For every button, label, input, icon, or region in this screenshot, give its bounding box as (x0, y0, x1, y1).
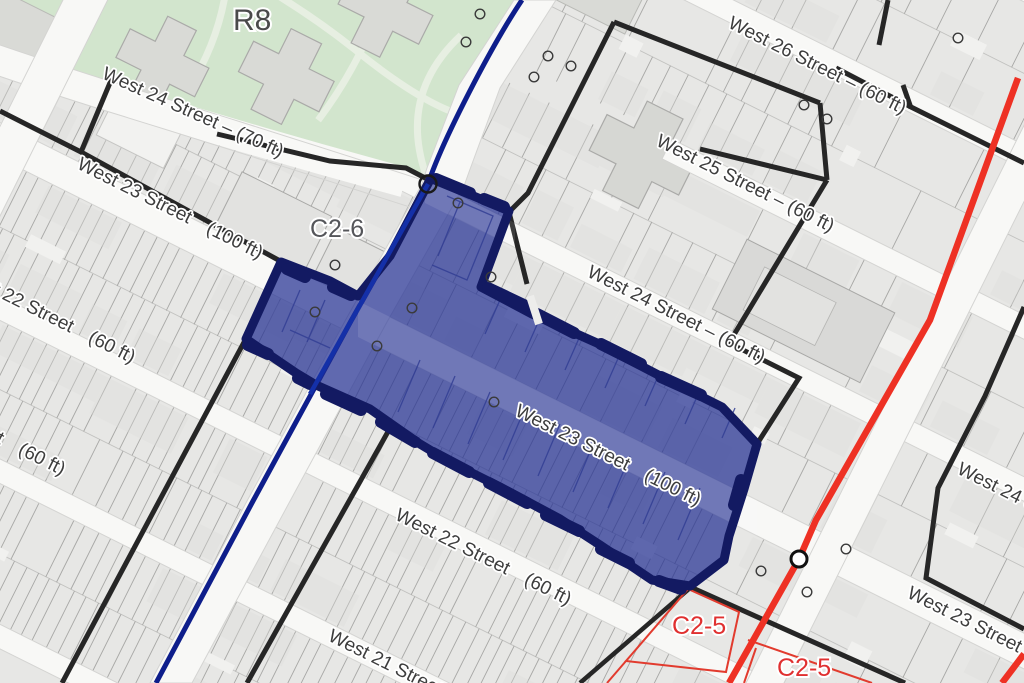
svg-text:R8: R8 (233, 4, 271, 37)
svg-text:C2-5: C2-5 (777, 654, 831, 682)
svg-text:C2-6: C2-6 (310, 215, 364, 243)
svg-text:C2-5: C2-5 (672, 612, 726, 640)
